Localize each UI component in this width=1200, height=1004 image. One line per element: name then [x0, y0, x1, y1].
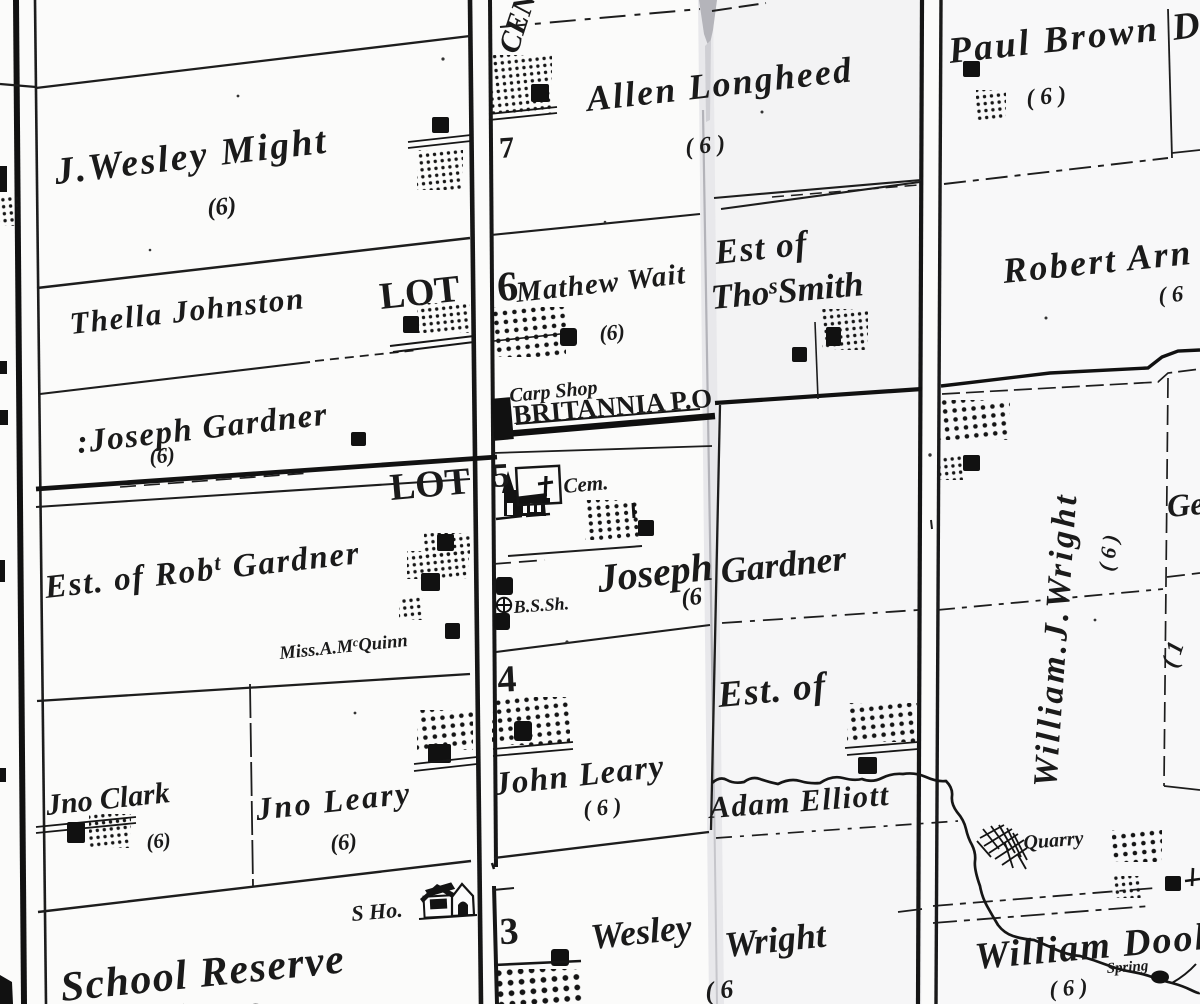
svg-text:(6): (6): [145, 828, 172, 854]
svg-text:Ge: Ge: [1165, 485, 1200, 524]
svg-text:(6: (6: [680, 583, 704, 612]
svg-text:(6): (6): [598, 318, 626, 346]
svg-text:3: 3: [499, 910, 519, 953]
svg-text:Spring: Spring: [1106, 958, 1149, 977]
svg-text:4: 4: [496, 658, 517, 701]
svg-text:( 6 ): ( 6 ): [1025, 82, 1067, 112]
svg-text:LOT: LOT: [378, 268, 462, 318]
svg-text:(6): (6): [206, 192, 238, 222]
svg-text:(6): (6): [148, 441, 176, 469]
svg-text:( 6 ): ( 6 ): [684, 131, 726, 161]
svg-text:(6): (6): [329, 828, 358, 856]
svg-text:Cem.: Cem.: [562, 470, 609, 498]
svg-text:B.S.Sh.: B.S.Sh.: [512, 593, 570, 617]
svg-text:( 6 ): ( 6 ): [1048, 974, 1088, 1002]
svg-text:( 6 ): ( 6 ): [1093, 533, 1123, 573]
svg-text:( 6 ): ( 6 ): [582, 793, 623, 822]
svg-text:7: 7: [498, 131, 515, 165]
svg-text:( 6: ( 6: [704, 974, 735, 1004]
svg-text:( 6: ( 6: [1157, 281, 1184, 308]
svg-text:5: 5: [491, 457, 510, 495]
svg-text:LOT: LOT: [388, 460, 472, 509]
svg-text:S Ho.: S Ho.: [350, 897, 403, 926]
svg-text:Quarry: Quarry: [1023, 827, 1085, 854]
